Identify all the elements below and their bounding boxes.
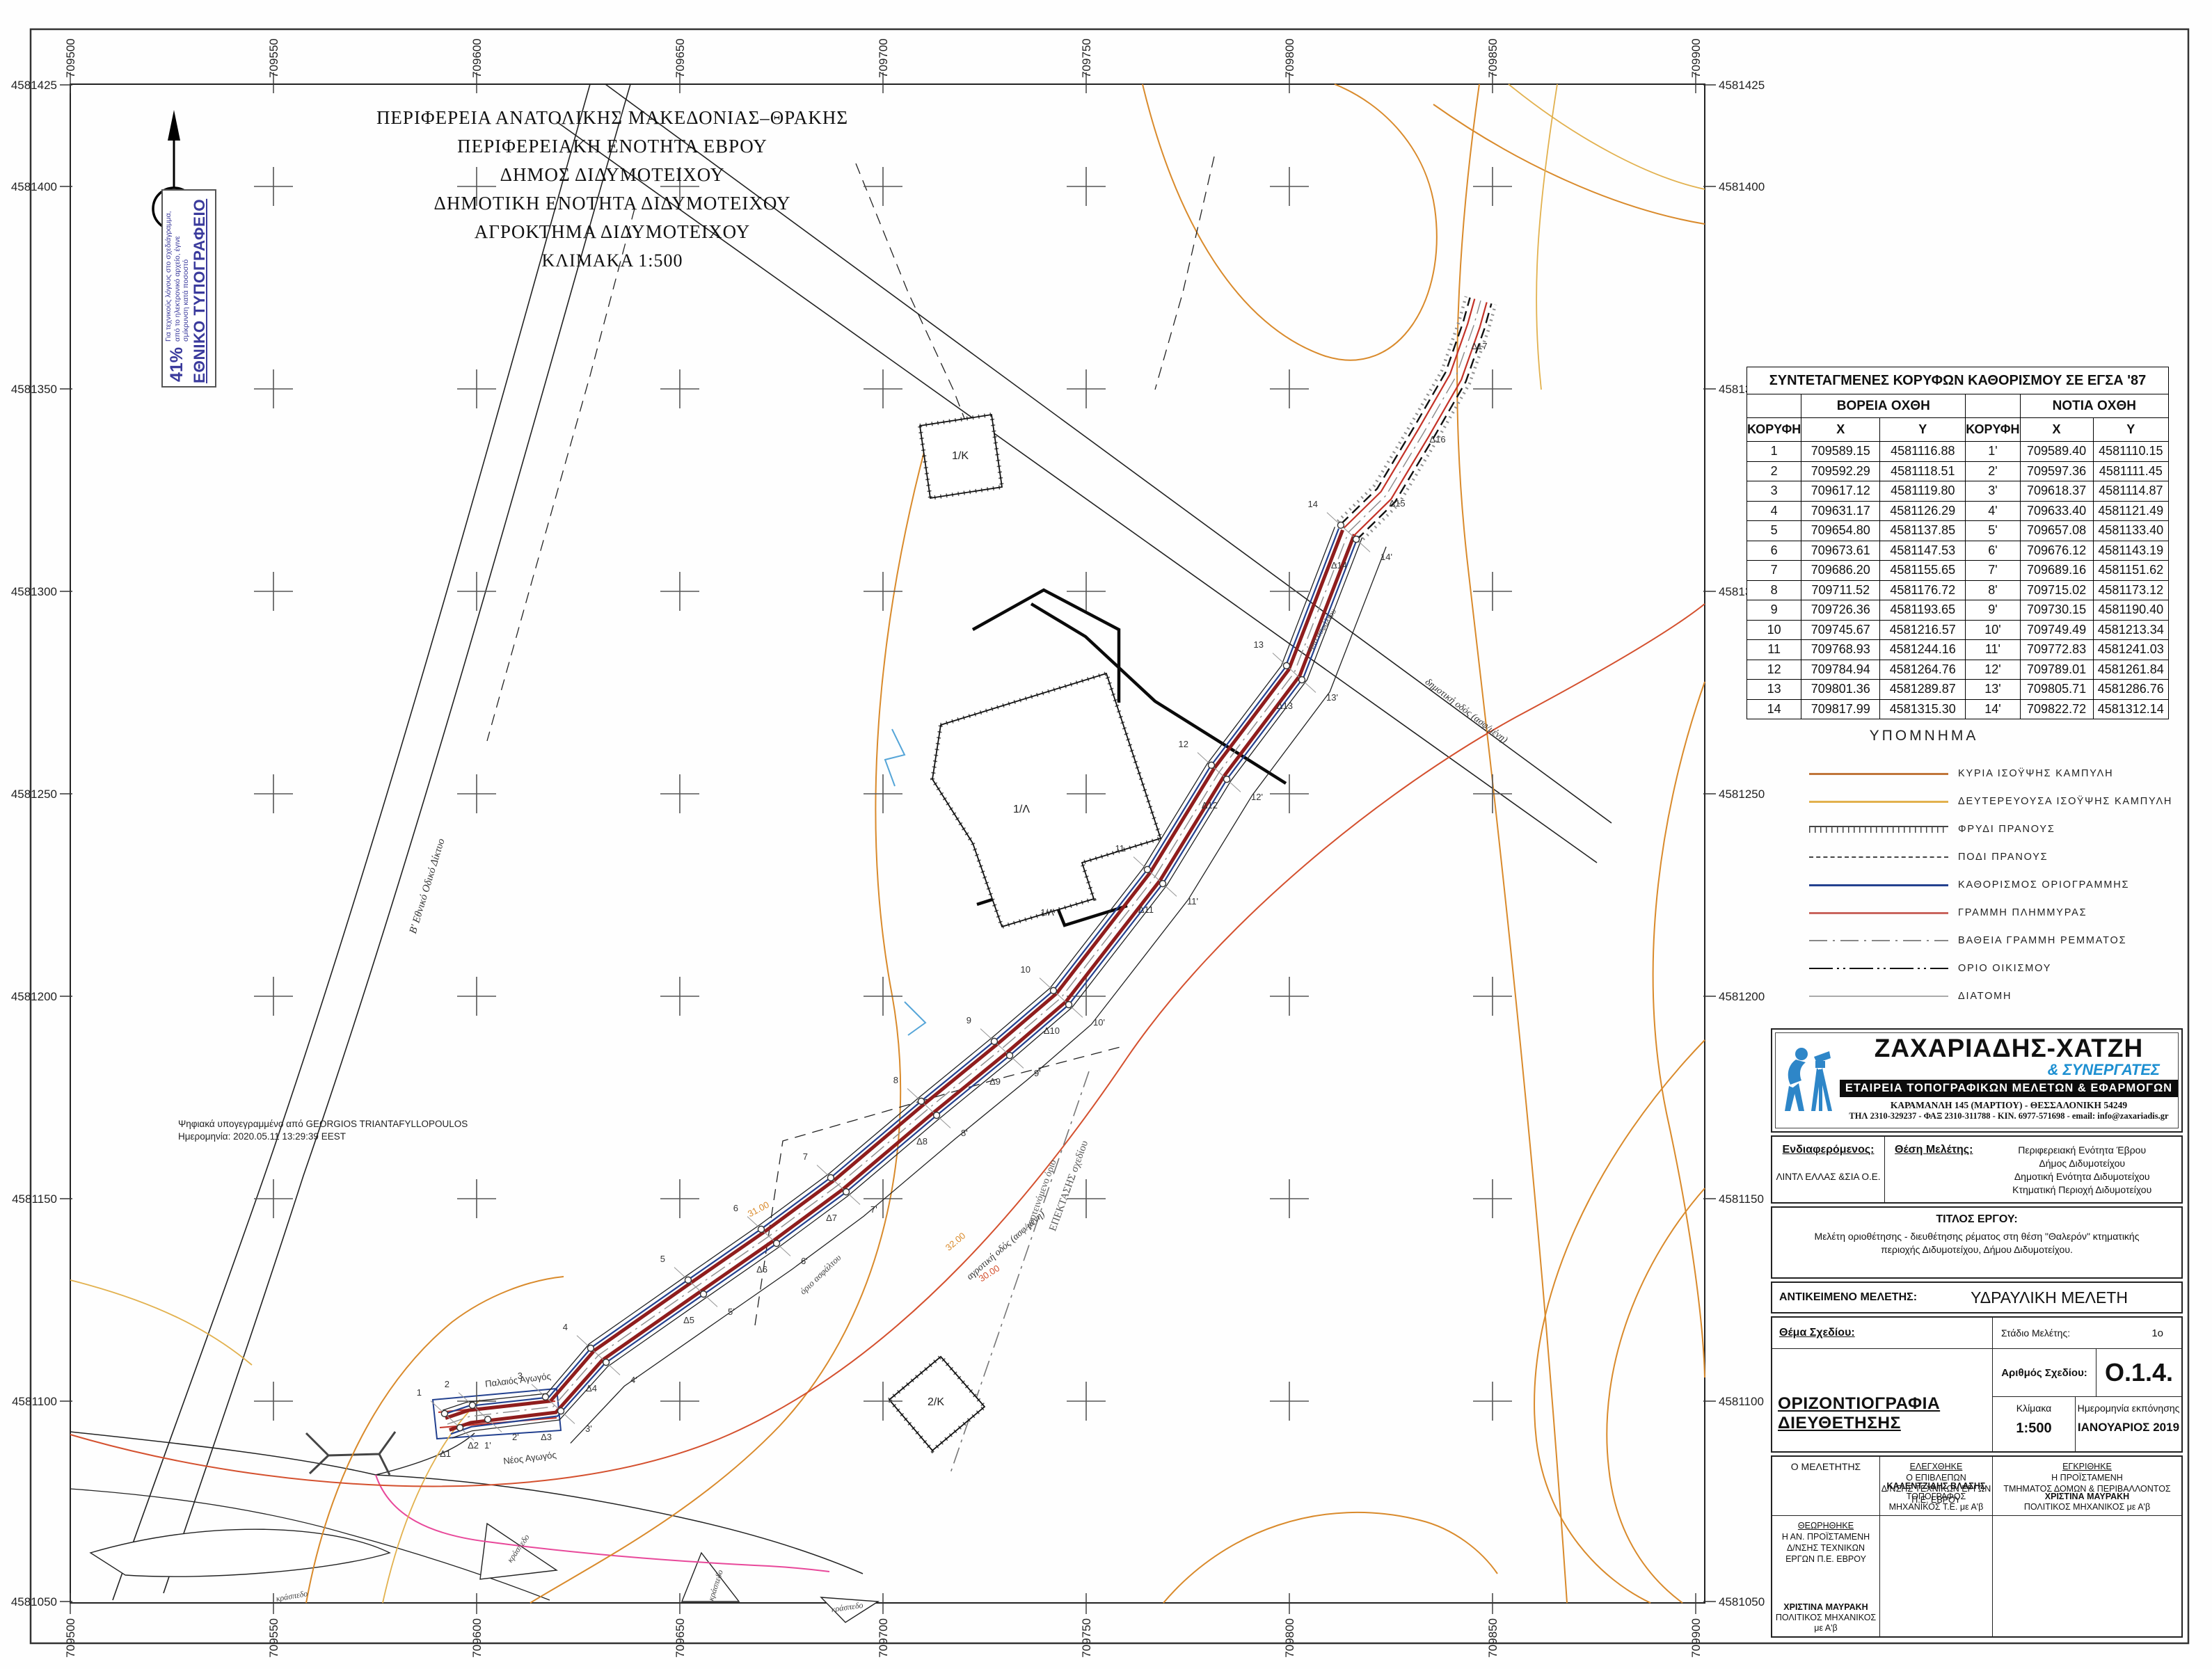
vertex-marker — [1224, 776, 1230, 783]
vertex-label: 9 — [966, 1015, 971, 1025]
vertex-marker — [1353, 536, 1360, 543]
legend-swatch-comb — [1809, 826, 1948, 833]
stamp-line1: Για τεχνικούς λόγους στο σχεδιάγραμμα, — [164, 211, 173, 342]
vertex-marker — [1144, 866, 1150, 872]
theme-label: Θέμα Σχεδίου: — [1772, 1327, 1855, 1339]
legend-swatch-dash — [1809, 856, 1948, 858]
grid-cross — [254, 977, 293, 1016]
table-row: 1709589.154581116.881'709589.404581110.1… — [1747, 442, 2169, 462]
vertex-delta-label: Δ8 — [916, 1136, 928, 1147]
vertex-marker — [1066, 1002, 1072, 1008]
grid-label-x: 709800 — [1283, 38, 1296, 78]
vertex-label: 4 — [563, 1322, 568, 1332]
location-label: Θέση Μελέτης: — [1885, 1144, 1982, 1156]
grid-label-x: 709700 — [877, 38, 890, 78]
legend-swatch-settle — [1809, 968, 1948, 970]
grid-label-y: 4581400 — [11, 180, 57, 193]
vertex-delta-label: Δ12 — [1202, 800, 1218, 810]
national-printing-stamp: 41% Για τεχνικούς λόγους στο σχεδιάγραμμ… — [161, 189, 216, 388]
sign-reviewed: ΘΕΩΡΗΘΗΚΕ Η ΑΝ. ΠΡΟΪΣΤΑΜΕΝΗ Δ/ΝΣΗΣ ΤΕΧΝΙ… — [1772, 1516, 1880, 1636]
table-row: 13709801.364581289.8713'709805.714581286… — [1747, 680, 2169, 700]
grid-cross — [660, 1179, 699, 1218]
signatures-box: Ο ΜΕΛΕΤΗΤΗΣ ΕΛΕΓΧΘΗΚΕ Ο ΕΠΙΒΛΕΠΩΝ Δ/ΝΣΗΣ… — [1771, 1455, 2183, 1638]
grid-label-x: 709850 — [1486, 1618, 1499, 1658]
legend-label: ΟΡΙΟ ΟΙΚΙΣΜΟΥ — [1958, 963, 2051, 974]
stage-label: Στάδιο Μελέτης: — [2001, 1327, 2070, 1339]
vertex-delta-label: Δ9 — [989, 1076, 1001, 1087]
grid-cross — [254, 572, 293, 611]
vertex-delta-label: Δ10 — [1044, 1025, 1060, 1036]
grid-cross — [457, 774, 496, 813]
vertex-label: 14 — [1308, 499, 1318, 509]
legend-label: ΔΕΥΤΕΡΕΥΟΥΣΑ ΙΣΟΫΨΗΣ ΚΑΜΠΥΛΗ — [1958, 796, 2172, 807]
number-value: Ο.1.4. — [2105, 1358, 2173, 1387]
map-label: Δ15 — [1389, 498, 1405, 509]
vertex-prime-label: 8' — [961, 1128, 968, 1138]
vertex-marker — [774, 1240, 780, 1247]
vertex-marker — [758, 1226, 764, 1232]
grid-label-x: 709900 — [1689, 38, 1703, 78]
channel-line — [445, 530, 1343, 1419]
table-group-south: ΝΟΤΙΑ ΟΧΘΗ — [2020, 394, 2168, 418]
drawing-title: ΟΡΙΖΟΝΤΙΟΓΡΑΦΙΑ ΔΙΕΥΘΕΤΗΣΗΣ — [1778, 1394, 1992, 1433]
vertex-prime-label: 12' — [1251, 792, 1263, 802]
number-label: Αριθμός Σχεδίου: — [2001, 1367, 2087, 1379]
vertex-marker — [1337, 522, 1344, 528]
channel-line — [452, 538, 1362, 1438]
vertex-delta-label: Δ3 — [541, 1432, 552, 1442]
stamp-percent: 41% — [167, 347, 187, 382]
sign-checked: ΕΛΕΓΧΘΗΚΕ Ο ΕΠΙΒΛΕΠΩΝ Δ/ΝΣΗΣ ΤΕΧΝΙΚΩΝ ΕΡ… — [1880, 1457, 1993, 1516]
vertex-marker — [469, 1402, 475, 1408]
grid-cross — [254, 369, 293, 408]
table-group-north: ΒΟΡΕΙΑ ΟΧΘΗ — [1801, 394, 1966, 418]
grid-label-y: 4581425 — [1719, 79, 1765, 92]
map-linework: ℬ — [70, 84, 1705, 1622]
grid-label-x: 709650 — [674, 38, 687, 78]
vertex-marker — [1283, 662, 1289, 669]
map-label: κράσπεδο — [275, 1588, 308, 1604]
map-label: 31.00 — [746, 1199, 771, 1220]
vertex-prime-label: 2' — [512, 1432, 519, 1442]
grid-cross — [1473, 977, 1512, 1016]
grid-layer: 7095007095007095507095507096007096007096… — [11, 38, 1765, 1657]
vertex-marker — [1208, 762, 1214, 768]
grid-cross — [864, 1179, 902, 1218]
grid-label-y: 4581150 — [1719, 1192, 1764, 1206]
vertex-label: 10 — [1021, 964, 1031, 975]
vertex-prime-label: 5' — [728, 1307, 735, 1317]
grid-cross — [1067, 369, 1106, 408]
legend-item: ΚΑΘΟΡΙΣΜΟΣ ΟΡΙΟΓΡΑΜΜΗΣ — [1809, 871, 2178, 899]
map-frame — [70, 84, 1705, 1603]
legend-label: ΔΙΑΤΟΜΗ — [1958, 991, 2012, 1002]
client-label: Ενδιαφερόμενος: — [1772, 1144, 1884, 1156]
vertex-delta-label: Δ1 — [440, 1448, 451, 1459]
vertex-delta-label: Δ6 — [756, 1264, 767, 1275]
col-x: X — [1801, 418, 1880, 442]
grid-label-y: 4581050 — [11, 1595, 57, 1608]
map-label: Νέος Αγωγός — [502, 1449, 557, 1466]
grid-label-x: 709650 — [674, 1618, 687, 1658]
grid-label-x: 709900 — [1689, 1618, 1703, 1658]
grid-cross — [254, 167, 293, 206]
legend-item: ΓΡΑΜΜΗ ΠΛΗΜΜΥΡΑΣ — [1809, 899, 2178, 927]
company-name: ΖΑΧΑΡΙΑΔΗΣ-ΧΑΤΖΗ — [1840, 1035, 2178, 1062]
map-label: 2/K — [928, 1396, 944, 1408]
map-label: 32.00 — [944, 1230, 968, 1252]
grid-cross — [1473, 369, 1512, 408]
legend-label: ΠΟΔΙ ΠΡΑΝΟΥΣ — [1958, 852, 2048, 863]
vertex-label: 2 — [445, 1379, 449, 1389]
grid-label-y: 4581100 — [12, 1395, 57, 1408]
channel-line — [571, 547, 1386, 1443]
date-label: Ημερομηνία εκπόνησης — [2076, 1403, 2181, 1414]
vertex-prime-label: 4' — [630, 1375, 637, 1385]
subject-box: ΑΝΤΙΚΕΙΜΕΝΟ ΜΕΛΕΤΗΣ: ΥΔΡΑΥΛΙΚΗ ΜΕΛΕΤΗ — [1771, 1281, 2183, 1313]
grid-cross — [1067, 167, 1106, 206]
table-row: 11709768.934581244.1611'709772.834581241… — [1747, 640, 2169, 660]
grid-label-x: 709600 — [470, 1618, 484, 1658]
grid-cross — [1067, 1382, 1106, 1421]
legend-label: ΒΑΘΕΙΑ ΓΡΑΜΜΗ ΡΕΜΜΑΤΟΣ — [1958, 935, 2126, 946]
project-title-box: ΤΙΤΛΟΣ ΕΡΓΟΥ: Μελέτη οριοθέτησης - διευθ… — [1771, 1206, 2183, 1279]
vertex-label: 7 — [803, 1151, 808, 1162]
vertex-prime-label: 14' — [1380, 552, 1392, 562]
col-y2: Y — [2093, 418, 2168, 442]
grid-cross — [254, 1382, 293, 1421]
table-row: 5709654.804581137.855'709657.084581133.4… — [1747, 521, 2169, 541]
grid-cross — [1473, 572, 1512, 611]
legend-swatch-section — [1809, 996, 1948, 997]
grid-cross — [457, 572, 496, 611]
table-row: 4709631.174581126.294'709633.404581121.4… — [1747, 501, 2169, 521]
company-contact: ΤΗΛ 2310-329237 - ΦΑΞ 2310-311788 - ΚΙΝ.… — [1840, 1111, 2178, 1121]
grid-cross — [1270, 369, 1309, 408]
client-location-box: Ενδιαφερόμενος: ΛΙΝΤΛ ΕΛΛΑΣ &ΣΙΑ Ο.Ε. Θέ… — [1771, 1135, 2183, 1204]
grid-cross — [254, 774, 293, 813]
grid-cross — [660, 977, 699, 1016]
legend-item: ΒΑΘΕΙΑ ΓΡΑΜΜΗ ΡΕΜΜΑΤΟΣ — [1809, 927, 2178, 955]
location-value: Περιφερειακή Ενότητα Έβρου Δήμος Διδυμοτ… — [1982, 1144, 2181, 1197]
grid-label-y: 4581100 — [1719, 1395, 1764, 1408]
table-row: 8709711.524581176.728'709715.024581173.1… — [1747, 580, 2169, 600]
vertex-delta-label: Δ4 — [586, 1383, 597, 1394]
grid-cross — [1270, 572, 1309, 611]
drawing-info-box: Θέμα Σχεδίου: Στάδιο Μελέτης: 1ο ΟΡΙΖΟΝΤ… — [1771, 1316, 2183, 1453]
vertex-label: 11 — [1115, 843, 1125, 854]
vertex-marker — [827, 1174, 834, 1181]
grid-cross — [1473, 1179, 1512, 1218]
drawing-sheet: ℬ 70950070950070955070955070960070960070… — [0, 0, 2212, 1669]
vertex-marker — [457, 1425, 463, 1431]
legend-title: ΥΠΟΜΝΗΜΑ — [1809, 728, 2039, 744]
grid-cross — [660, 774, 699, 813]
vertex-delta-label: Δ14 — [1331, 560, 1347, 570]
vertex-marker — [701, 1291, 707, 1297]
map-label: Δ17 — [1471, 341, 1487, 351]
vertex-marker — [1299, 677, 1305, 683]
legend-item: ΔΙΑΤΟΜΗ — [1809, 982, 2178, 1010]
sign-approved: ΕΓΚΡΙΘΗΚΕ Η ΠΡΟΪΣΤΑΜΕΝΗ ΤΜΗΜΑΤΟΣ ΔΟΜΩΝ &… — [1993, 1457, 2181, 1516]
map-label: ΕΠΕΚΤΑΣΗΣ σχεδίου — [1047, 1139, 1090, 1232]
vertex-delta-label: Δ11 — [1138, 904, 1154, 915]
grid-label-y: 4581350 — [11, 383, 57, 396]
grid-cross — [660, 1382, 699, 1421]
vertex-prime-label: 7' — [870, 1204, 877, 1215]
vertex-delta-label: Δ2 — [468, 1440, 479, 1451]
vertex-prime-label: 11' — [1187, 896, 1198, 907]
legend-label: ΚΥΡΙΑ ΙΣΟΫΨΗΣ ΚΑΜΠΥΛΗ — [1958, 768, 2113, 779]
col-y: Y — [1880, 418, 1966, 442]
vertex-layer: 1Δ11'2Δ22'3Δ33'4Δ44'5Δ55'6Δ66'7Δ77'8Δ88'… — [417, 499, 1392, 1459]
channel-line — [444, 529, 1339, 1414]
region-title-layer: ΠΕΡΙΦΕΡΕΙΑ ΑΝΑΤΟΛΙΚΗΣ ΜΑΚΕΔΟΝΙΑΣ–ΘΡΑΚΗΣΠ… — [376, 107, 848, 271]
vertex-label: 12 — [1179, 739, 1188, 749]
vertex-label: 1 — [417, 1387, 422, 1398]
grid-label-x: 709600 — [470, 38, 484, 78]
scale-value: 1:500 — [1993, 1421, 2075, 1437]
vertex-marker — [587, 1345, 594, 1351]
grid-cross — [1270, 167, 1309, 206]
grid-cross — [1473, 167, 1512, 206]
sign-designer: Ο ΜΕΛΕΤΗΤΗΣ — [1772, 1457, 1880, 1516]
map-label: 1/Λ — [1013, 804, 1030, 815]
company-logo-icon — [1776, 1033, 1840, 1128]
company-box: ΖΑΧΑΡΙΑΔΗΣ-ΧΑΤΖΗ & ΣΥΝΕΡΓΑΤΕΣ ΕΤΑΙΡΕΙΑ Τ… — [1771, 1028, 2183, 1133]
vertex-label: 5 — [660, 1254, 665, 1264]
company-address: ΚΑΡΑΜΑΝΛΗ 145 (ΜΑΡΤΙΟΥ) - ΘΕΣΣΑΛΟΝΙΚΗ 54… — [1840, 1100, 2178, 1111]
grid-cross — [660, 572, 699, 611]
region-title-line: ΔΗΜΟΣ ΔΙΔΥΜΟΤΕΙΧΟΥ — [500, 164, 725, 185]
legend-item: ΟΡΙΟ ΟΙΚΙΣΜΟΥ — [1809, 955, 2178, 982]
legend-swatch-flood — [1809, 912, 1948, 914]
vertex-marker — [603, 1359, 610, 1366]
legend-label: ΚΑΘΟΡΙΣΜΟΣ ΟΡΙΟΓΡΑΜΜΗΣ — [1958, 879, 2129, 891]
grid-label-x: 709850 — [1486, 38, 1499, 78]
project-title: Μελέτη οριοθέτησης - διευθέτησης ρέματος… — [1772, 1230, 2181, 1256]
grid-cross — [1473, 1382, 1512, 1421]
scale-label: Κλίμακα — [1993, 1403, 2075, 1414]
coordinates-table: ΣΥΝΤΕΤΑΓΜΕΝΕΣ ΚΟΡΥΦΩΝ ΚΑΘΟΡΙΣΜΟΥ ΣΕ ΕΓΣΑ… — [1746, 367, 2169, 719]
table-row: 9709726.364581193.659'709730.154581190.4… — [1747, 600, 2169, 621]
grid-label-y: 4581200 — [1719, 990, 1765, 1003]
vertex-marker — [1050, 987, 1056, 993]
vertex-marker — [843, 1189, 850, 1195]
region-title-line: ΠΕΡΙΦΕΡΕΙΑΚΗ ΕΝΟΤΗΤΑ ΕΒΡΟΥ — [457, 136, 767, 157]
vertex-marker — [441, 1410, 447, 1416]
grid-label-y: 4581250 — [1719, 788, 1765, 801]
region-title-line: ΔΗΜΟΤΙΚΗ ΕΝΟΤΗΤΑ ΔΙΔΥΜΟΤΕΙΧΟΥ — [433, 193, 790, 214]
legend-swatch-main — [1809, 773, 1948, 775]
subject-value: ΥΔΡΑΥΛΙΚΗ ΜΕΛΕΤΗ — [1917, 1288, 2181, 1307]
vertex-marker — [558, 1408, 564, 1414]
vertex-marker — [485, 1416, 491, 1423]
legend-item: ΚΥΡΙΑ ΙΣΟΫΨΗΣ ΚΑΜΠΥΛΗ — [1809, 760, 2178, 788]
region-title-line: ΚΛΙΜΑΚΑ 1:500 — [541, 250, 683, 271]
grid-cross — [864, 774, 902, 813]
table-row: 6709673.614581147.536'709676.124581143.1… — [1747, 541, 2169, 561]
vertex-delta-label: Δ13 — [1277, 701, 1293, 711]
legend-item: ΦΡΥΔΙ ΠΡΑΝΟΥΣ — [1809, 815, 2178, 843]
vertex-marker — [918, 1098, 924, 1104]
legend-label: ΓΡΑΜΜΗ ΠΛΗΜΜΥΡΑΣ — [1958, 907, 2087, 918]
grid-cross — [1270, 1382, 1309, 1421]
vertex-marker — [685, 1277, 691, 1283]
vertex-marker — [934, 1112, 940, 1119]
table-row: 3709617.124581119.803'709618.374581114.8… — [1747, 481, 2169, 502]
subject-label: ΑΝΤΙΚΕΙΜΕΝΟ ΜΕΛΕΤΗΣ: — [1772, 1291, 1917, 1304]
grid-label-x: 709500 — [64, 38, 77, 78]
grid-label-y: 4581150 — [12, 1192, 57, 1206]
vertex-label: 13 — [1254, 639, 1264, 650]
vertex-label: 6 — [733, 1203, 738, 1213]
grid-label-y: 4581300 — [11, 585, 57, 598]
grid-label-y: 4581200 — [11, 990, 57, 1003]
company-strip: ΕΤΑΙΡΕΙΑ ΤΟΠΟΓΡΑΦΙΚΩΝ ΜΕΛΕΤΩΝ & ΕΦΑΡΜΟΓΩ… — [1840, 1080, 2178, 1097]
channel-line — [449, 534, 1355, 1430]
grid-label-x: 709700 — [877, 1618, 890, 1658]
grid-cross — [864, 167, 902, 206]
map-label: Ημερομηνία: 2020.05.11 13:29:39 EEST — [178, 1131, 346, 1142]
map-label-layer: Β' Εθνικό Οδικό Δίκτυοδημοτική οδός (ασφ… — [178, 341, 1509, 1614]
vertex-marker — [542, 1394, 548, 1400]
channel-line — [451, 536, 1358, 1434]
table-row: 2709592.294581118.512'709597.364581111.4… — [1747, 461, 2169, 481]
table-row: 14709817.994581315.3014'709822.724581312… — [1747, 699, 2169, 719]
col-vertex: ΚΟΡΥΦΗ — [1747, 418, 1801, 442]
map-label: Β' Εθνικό Οδικό Δίκτυο — [408, 837, 447, 935]
vertex-marker — [991, 1038, 997, 1044]
stamp-line3: σμίκρυνση κατά ποσοστό — [182, 211, 191, 342]
grid-cross — [254, 1179, 293, 1218]
grid-label-x: 709750 — [1080, 38, 1093, 78]
channel-line — [447, 532, 1348, 1424]
legend-swatch-sec — [1809, 801, 1948, 803]
vertex-delta-label: Δ5 — [683, 1315, 694, 1325]
table-row: 10709745.674581216.5710'709749.494581213… — [1747, 620, 2169, 640]
table-row: 12709784.944581264.7612'709789.014581261… — [1747, 660, 2169, 680]
vertex-marker — [1160, 881, 1166, 887]
grid-cross — [864, 1382, 902, 1421]
grid-cross — [457, 1179, 496, 1218]
region-title-line: ΑΓΡΟΚΤΗΜΑ ΔΙΔΥΜΟΤΕΙΧΟΥ — [475, 221, 751, 242]
section-line — [577, 1336, 620, 1375]
project-label: ΤΙΤΛΟΣ ΕΡΓΟΥ: — [1772, 1213, 2181, 1226]
vertex-prime-label: 1' — [484, 1440, 491, 1451]
company-name2: & ΣΥΝΕΡΓΑΤΕΣ — [1840, 1062, 2178, 1078]
legend: ΥΠΟΜΝΗΜΑ ΚΥΡΙΑ ΙΣΟΫΨΗΣ ΚΑΜΠΥΛΗΔΕΥΤΕΡΕΥΟΥ… — [1809, 728, 2178, 1010]
grid-label-y: 4581400 — [1719, 180, 1765, 193]
vertex-delta-label: Δ7 — [826, 1213, 837, 1223]
grid-label-y: 4581050 — [1719, 1595, 1765, 1608]
grid-label-x: 709500 — [64, 1618, 77, 1658]
col-x2: X — [2020, 418, 2093, 442]
grid-label-y: 4581250 — [11, 788, 57, 801]
vertex-prime-label: 10' — [1093, 1017, 1105, 1028]
grid-cross — [1270, 774, 1309, 813]
grid-cross — [1270, 977, 1309, 1016]
stamp-line2: από το ηλεκτρονικό αρχείο, έγινε — [173, 211, 182, 342]
legend-swatch-deep — [1809, 940, 1948, 941]
region-title-line: ΠΕΡΙΦΕΡΕΙΑ ΑΝΑΤΟΛΙΚΗΣ ΜΑΚΕΔΟΝΙΑΣ–ΘΡΑΚΗΣ — [376, 107, 848, 128]
map-label: 1/K — [952, 450, 969, 462]
channel-line — [1338, 296, 1466, 521]
legend-item: ΠΟΔΙ ΠΡΑΝΟΥΣ — [1809, 843, 2178, 871]
grid-label-x: 709550 — [267, 38, 280, 78]
grid-cross — [457, 369, 496, 408]
legend-swatch-blue — [1809, 884, 1948, 886]
channel-line — [1353, 302, 1486, 536]
channel-line — [1344, 299, 1475, 528]
channel-line — [1341, 298, 1470, 525]
vertex-prime-label: 13' — [1326, 692, 1338, 703]
vertex-marker — [1007, 1053, 1013, 1059]
grid-label-x: 709550 — [267, 1618, 280, 1658]
grid-cross — [1473, 774, 1512, 813]
section-line — [674, 1268, 717, 1307]
stage-value: 1ο — [2151, 1327, 2163, 1339]
vertex-label: 8 — [893, 1075, 898, 1085]
stamp-title: ΕΘΝΙΚΟ ΤΥΠΟΓΡΑΦΕΙΟ — [191, 193, 209, 383]
map-label: δημοτική οδός (ασφ/μένη) — [1423, 677, 1509, 746]
map-label: Δ16 — [1429, 434, 1445, 445]
client-value: ΛΙΝΤΛ ΕΛΛΑΣ &ΣΙΑ Ο.Ε. — [1772, 1172, 1884, 1182]
grid-label-x: 709750 — [1080, 1618, 1093, 1658]
legend-label: ΦΡΥΔΙ ΠΡΑΝΟΥΣ — [1958, 824, 2055, 835]
vertex-prime-label: 3' — [585, 1423, 592, 1434]
grid-cross — [1270, 1179, 1309, 1218]
grid-cross — [457, 977, 496, 1016]
vertex-prime-label: 9' — [1034, 1068, 1041, 1078]
grid-cross — [864, 977, 902, 1016]
channel-line — [443, 527, 1335, 1410]
grid-cross — [660, 369, 699, 408]
grid-label-y: 4581425 — [11, 79, 57, 92]
table-row: 7709686.204581155.657'709689.164581151.6… — [1747, 561, 2169, 581]
map-label: 1/Λ — [1040, 907, 1054, 918]
col-vertex2: ΚΟΡΥΦΗ — [1966, 418, 2020, 442]
table-title: ΣΥΝΤΕΤΑΓΜΕΝΕΣ ΚΟΡΥΦΩΝ ΚΑΘΟΡΙΣΜΟΥ ΣΕ ΕΓΣΑ… — [1747, 367, 2169, 394]
grid-label-x: 709800 — [1283, 1618, 1296, 1658]
date-value: ΙΑΝΟΥΑΡΙΟΣ 2019 — [2076, 1421, 2181, 1435]
map-label: Ψηφιακά υπογεγραμμένο από GEORGIOS TRIAN… — [178, 1119, 468, 1129]
vertex-prime-label: 6' — [801, 1256, 808, 1266]
grid-cross — [864, 369, 902, 408]
legend-item: ΔΕΥΤΕΡΕΥΟΥΣΑ ΙΣΟΫΨΗΣ ΚΑΜΠΥΛΗ — [1809, 788, 2178, 815]
